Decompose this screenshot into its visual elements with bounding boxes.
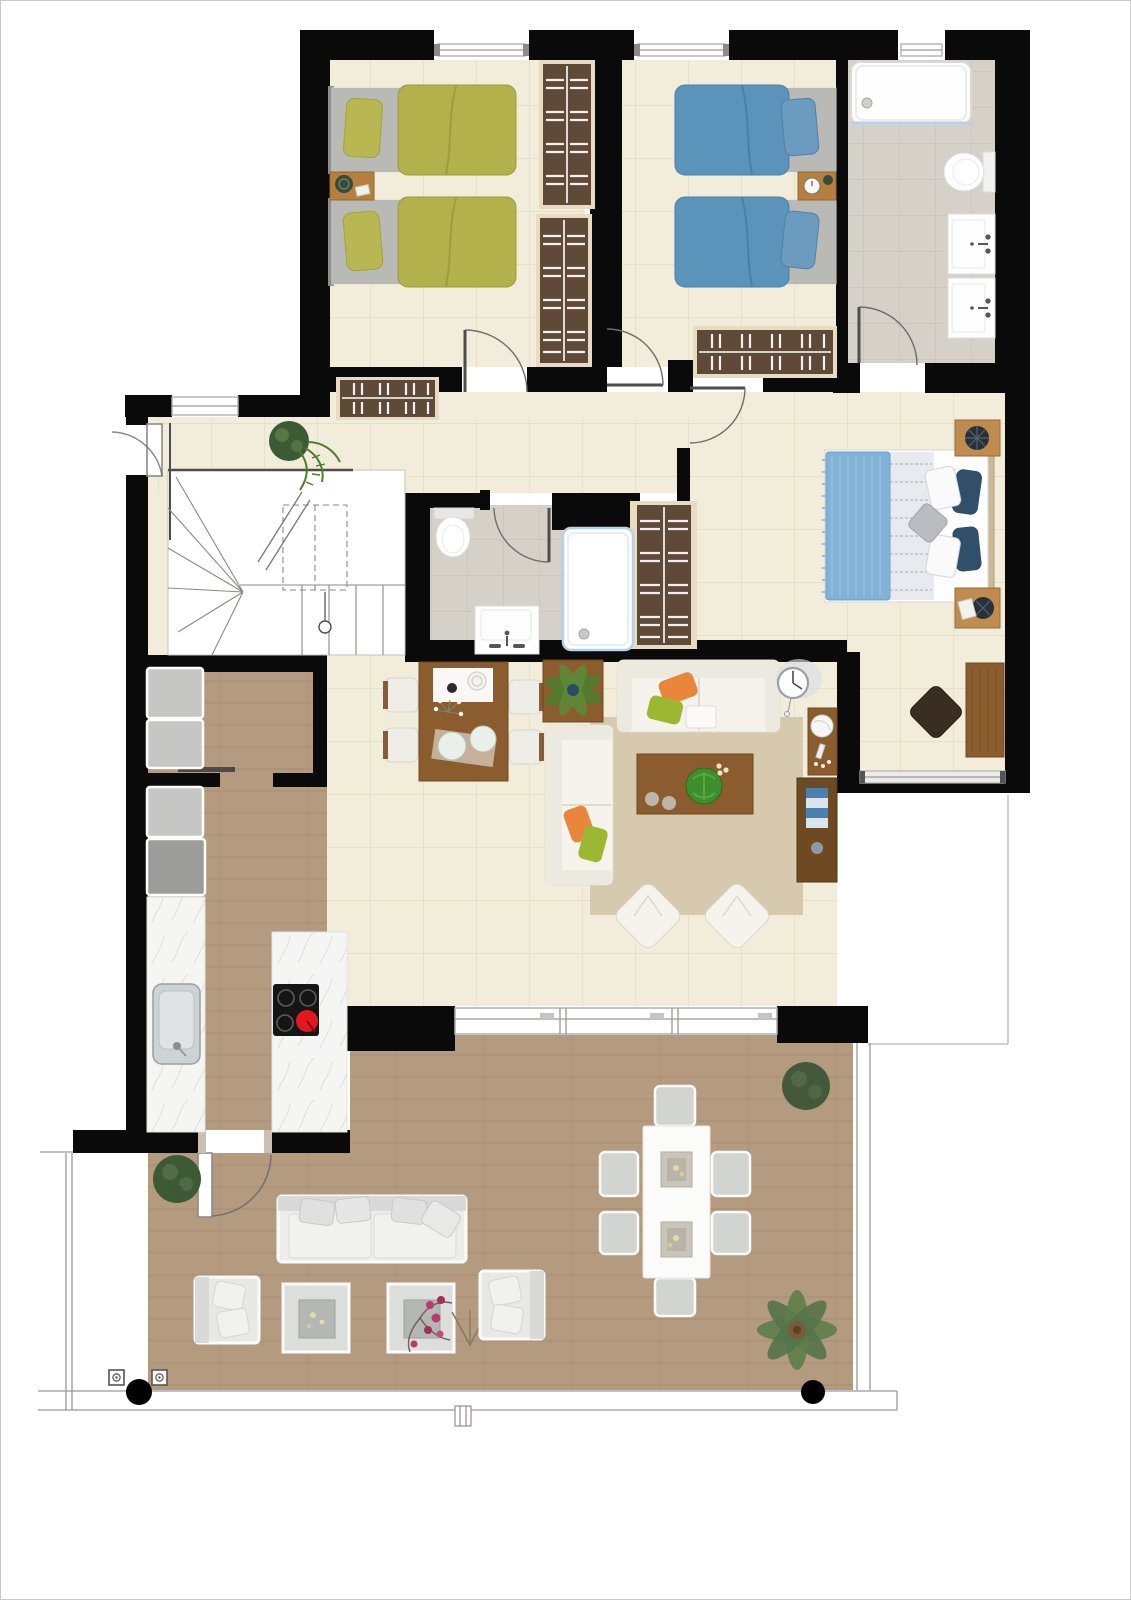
sofa-pillow (298, 1198, 335, 1226)
washbasin (948, 214, 995, 274)
washbasin (475, 606, 539, 654)
decor-item (811, 842, 823, 854)
sofa-left (545, 725, 613, 885)
sliding-glass-door (455, 1008, 777, 1034)
outdoor-chair (655, 1086, 695, 1126)
appliance (147, 787, 203, 837)
pillow-blue (780, 210, 820, 269)
plant-on-nightstand (335, 175, 353, 193)
window-bedroom-blue (634, 30, 729, 60)
plate (470, 726, 496, 752)
window-family-bathroom (898, 30, 945, 60)
coaster (645, 792, 659, 806)
coffee-table (637, 754, 753, 814)
terrace-palm (757, 1290, 837, 1370)
staircase-area (168, 470, 405, 655)
appliance (147, 720, 203, 768)
washbasin (948, 278, 995, 338)
duvet-blue (675, 85, 789, 175)
window-bedroom-olive (434, 30, 529, 60)
dining-chair (383, 678, 418, 712)
outdoor-armchair (195, 1277, 259, 1343)
appliance (147, 668, 203, 718)
sofa-pillow (335, 1196, 371, 1223)
wardrobe-olive-room-lower (536, 214, 592, 367)
railing-post-icon (455, 1406, 471, 1426)
terrace-bush (782, 1062, 830, 1110)
pillow-blue (781, 98, 820, 157)
pillow-olive (343, 211, 384, 272)
floor-plan (0, 0, 1131, 1600)
pillow-olive (343, 98, 383, 158)
wardrobe-shower-bathroom (630, 501, 697, 649)
dining-chair (383, 728, 418, 762)
bathtub (851, 62, 971, 124)
outdoor-chair (600, 1212, 638, 1254)
outdoor-chair (712, 1212, 750, 1254)
railing-band-right (853, 1035, 875, 1390)
outdoor-chair (712, 1152, 750, 1196)
shower-drain (579, 629, 589, 639)
coaster (662, 796, 676, 810)
outdoor-side-table (283, 1284, 349, 1352)
bowl (447, 683, 457, 693)
media-unit-upper (808, 708, 837, 775)
terrace-bush (153, 1155, 201, 1203)
duvet-olive (398, 197, 516, 287)
dining-chair (509, 680, 544, 714)
media-unit-lower (797, 778, 837, 882)
bathtub-drain (862, 98, 872, 108)
window-hall (172, 397, 238, 415)
toilet (436, 517, 470, 557)
side-table (686, 706, 716, 728)
dining-chair (509, 730, 544, 764)
wardrobe-olive-room-upper (539, 60, 595, 209)
toilet-cistern (983, 152, 995, 192)
stair-direction-marker (319, 621, 331, 633)
decor-bowl (811, 715, 833, 737)
column (126, 1379, 152, 1405)
duvet-olive (398, 85, 516, 175)
wardrobe-blue-room (693, 326, 837, 378)
potted-palm (542, 660, 605, 722)
outdoor-armchair (480, 1271, 544, 1339)
outdoor-sofa (278, 1196, 466, 1262)
plate (468, 672, 486, 690)
outdoor-chair (655, 1278, 695, 1316)
kitchen-sink (153, 984, 200, 1064)
wardrobe-hall (336, 377, 439, 420)
entrance-door (112, 424, 162, 476)
column (801, 1380, 825, 1404)
rug (590, 717, 803, 915)
plate (438, 732, 466, 760)
shower (563, 528, 633, 650)
induction-hob (273, 984, 319, 1036)
appliance-oven (147, 839, 205, 895)
floor-plan-canvas (0, 0, 1131, 1600)
outdoor-chair (600, 1152, 638, 1196)
window-master-bedroom (860, 771, 1005, 783)
duvet-blue (675, 197, 789, 287)
plant-on-nightstand (823, 175, 833, 185)
